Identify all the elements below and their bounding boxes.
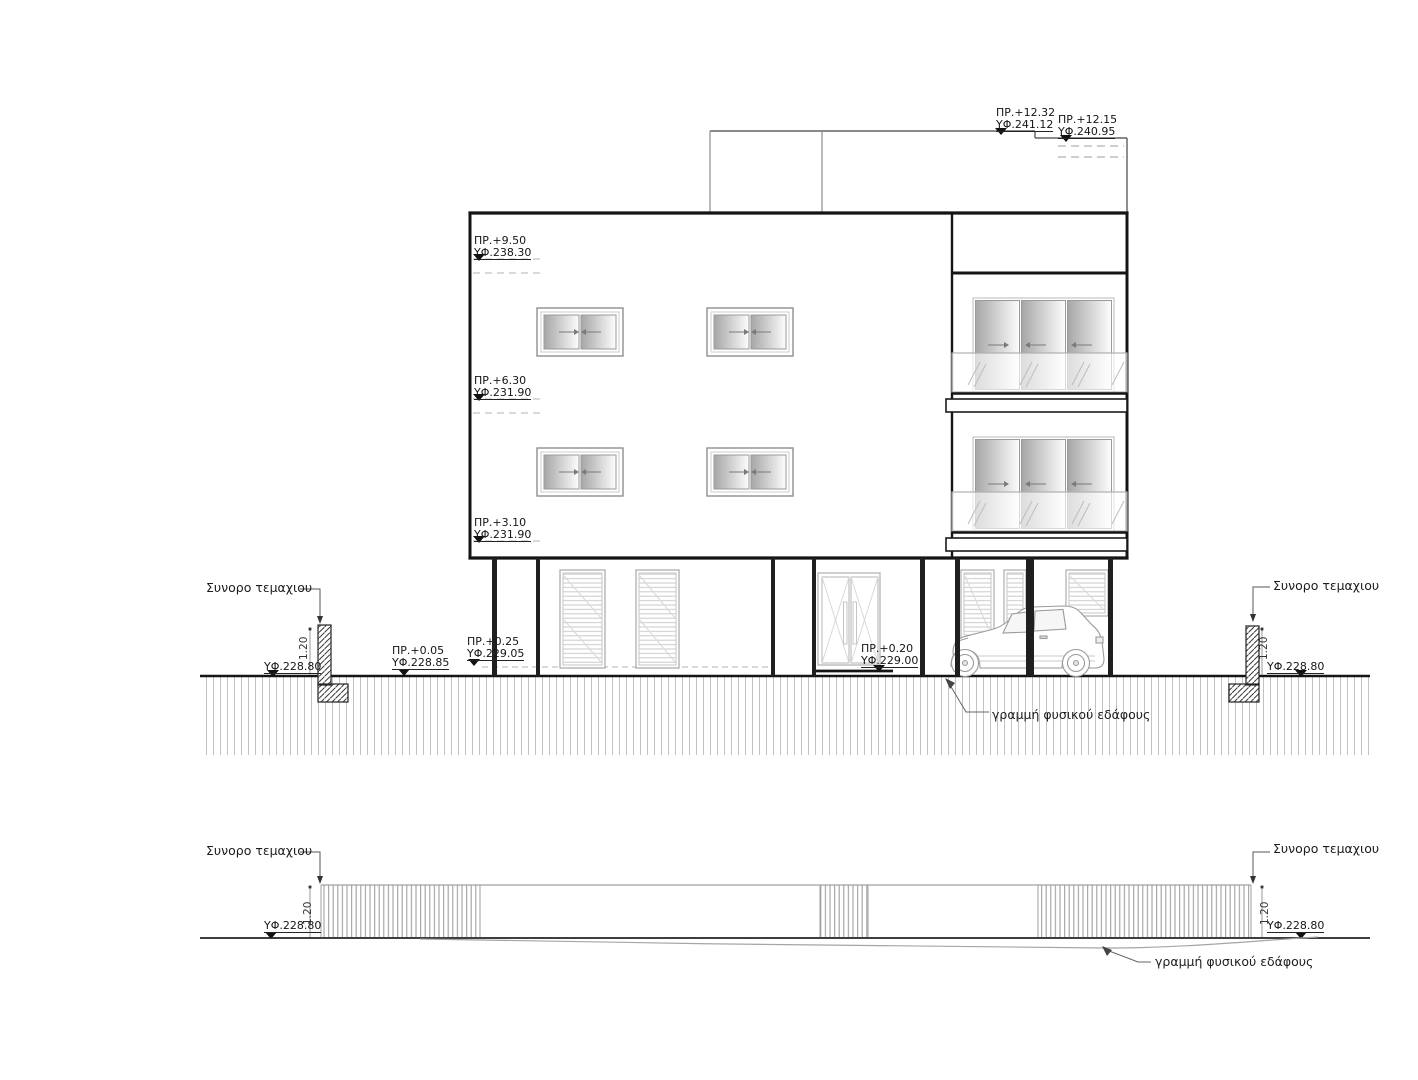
wall-height-dim-bottom-right: 1.20 [1259, 902, 1271, 925]
level-marker-005: ΠΡ.+0.05 ΥΦ.228.85 [392, 646, 449, 670]
elevation-drawing-sheet: Συνορο τεμαχιου Συνορο τεμαχιου Συνορο τ… [0, 0, 1418, 1080]
level-marker-roof-main: ΠΡ.+12.32 ΥΦ.241.12 [996, 108, 1055, 132]
wall-height-dim-top-right: 1.20 [1258, 637, 1270, 660]
window [707, 448, 793, 496]
wall-height-dim-bottom-left: 1.20 [302, 902, 314, 925]
plot-boundary-label-bottom-right: Συνορο τεμαχιου [1273, 841, 1379, 856]
level-marker-630: ΠΡ.+6.30 ΥΦ.231.90 [474, 376, 531, 400]
fence-elevation [200, 852, 1370, 962]
roof-structure [710, 131, 1127, 213]
wall-height-dim-top-left: 1.20 [298, 637, 310, 660]
level-marker-roof-stair: ΠΡ.+12.15 ΥΦ.240.95 [1058, 115, 1117, 139]
drawing-linework [0, 0, 1418, 1080]
plot-boundary-label-bottom-left: Συνορο τεμαχιου [206, 843, 312, 858]
level-marker-310: ΠΡ.+3.10 ΥΦ.231.90 [474, 518, 531, 542]
ground-level-marker-bottom-right: ΥΦ.228.80 [1267, 921, 1324, 933]
louver-shutter [636, 570, 679, 668]
level-triangle-icon [265, 128, 1307, 939]
louver-shutter [560, 570, 605, 668]
earth-hatch [200, 677, 1370, 755]
balcony-upper [946, 298, 1127, 412]
plot-boundary-label-top-right: Συνορο τεμαχιου [1273, 578, 1379, 593]
level-marker-950: ΠΡ.+9.50 ΥΦ.238.30 [474, 236, 531, 260]
ground-level-marker-top-right: ΥΦ.228.80 [1267, 662, 1324, 674]
natural-ground-label-bottom: γραμμή φυσικού εδάφους [1155, 954, 1313, 969]
balcony-lower [946, 437, 1127, 551]
plot-boundary-label-top-left: Συνορο τεμαχιου [206, 580, 312, 595]
window [537, 308, 623, 356]
louver-shutter [961, 570, 994, 638]
level-marker-020: ΠΡ.+0.20 ΥΦ.229.00 [861, 644, 918, 668]
window [707, 308, 793, 356]
level-marker-025: ΠΡ.+0.25 ΥΦ.229.05 [467, 637, 524, 661]
natural-ground-label-top: γραμμή φυσικού εδάφους [992, 707, 1150, 722]
window [537, 448, 623, 496]
ground-level-marker-top-left: ΥΦ.228.80 [264, 662, 321, 674]
